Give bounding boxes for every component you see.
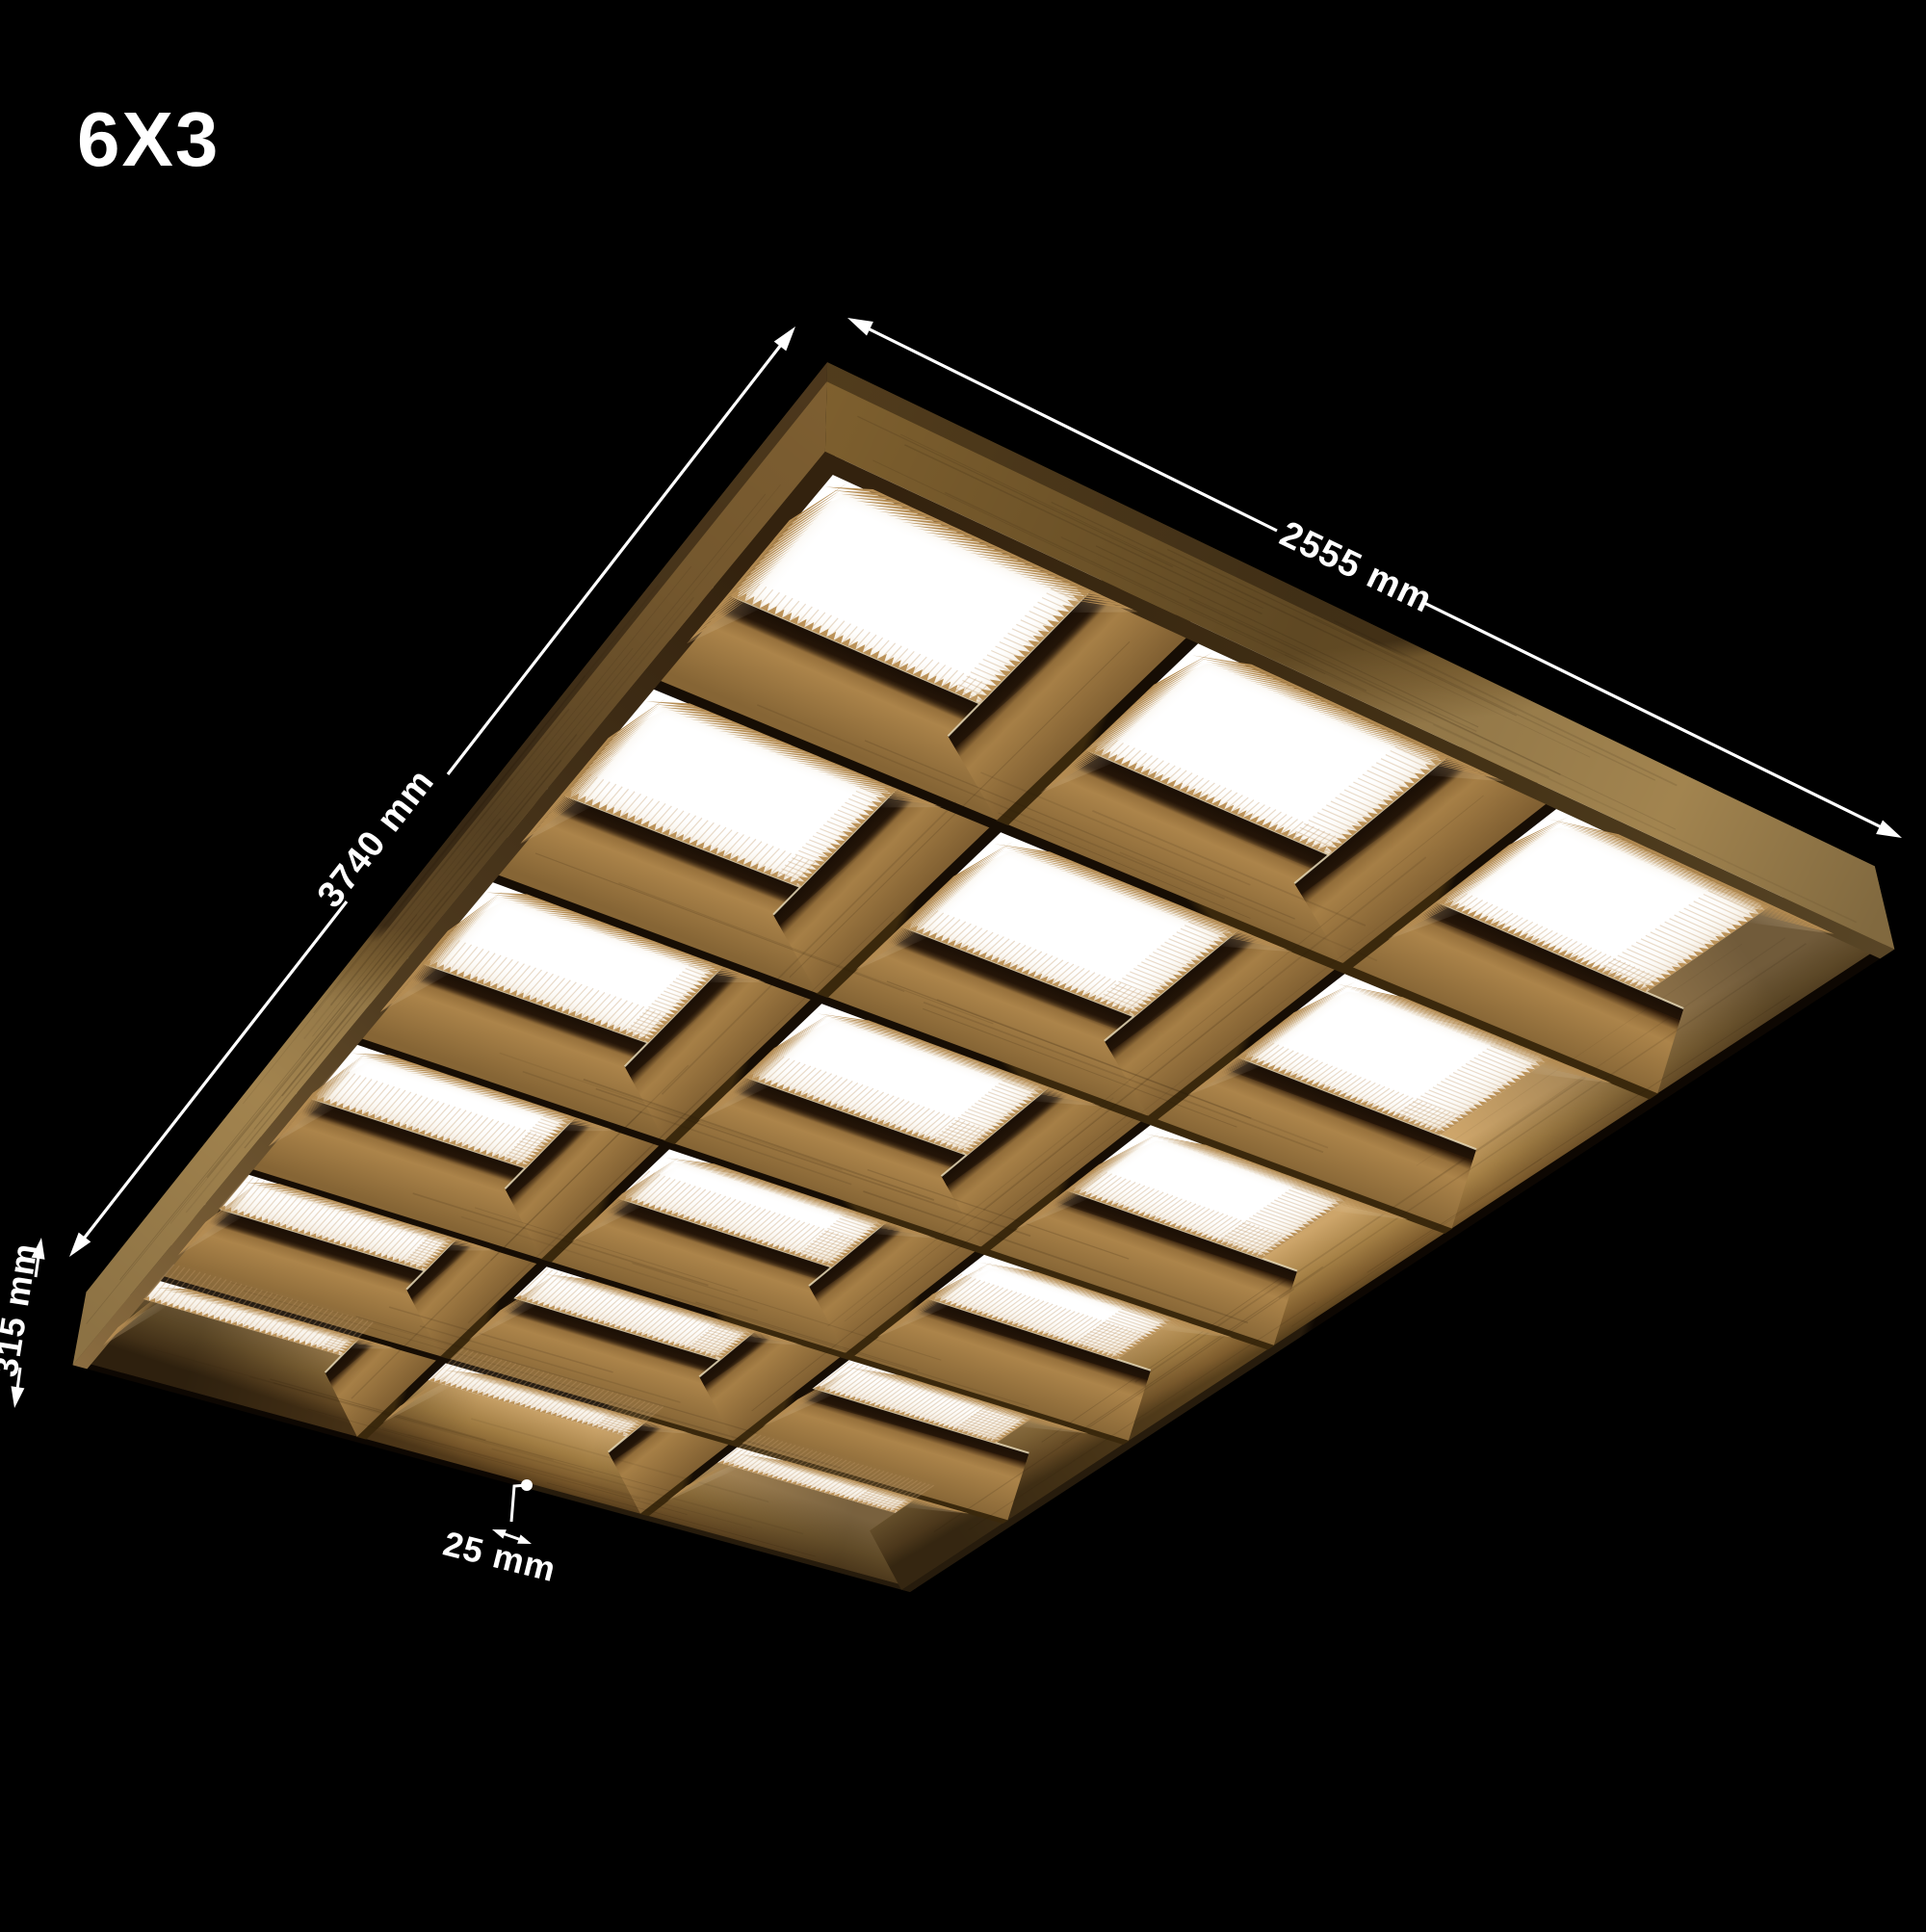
svg-text:6X3: 6X3 — [77, 96, 220, 182]
